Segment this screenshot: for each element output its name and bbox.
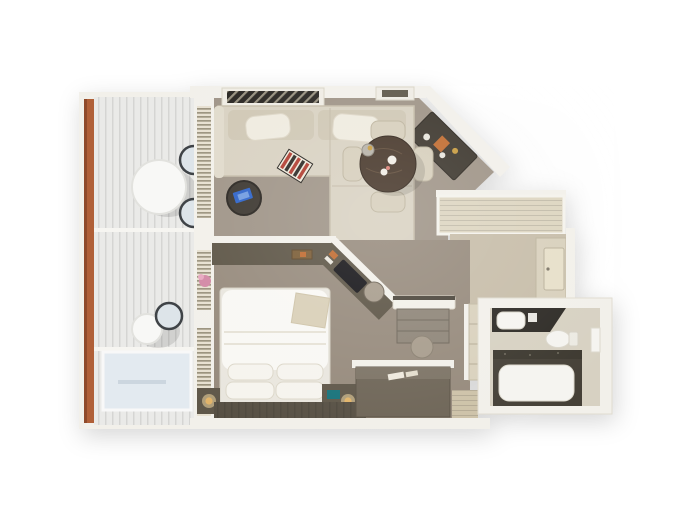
floorplan-canvas [0, 0, 680, 510]
outdoor-chair [156, 303, 182, 329]
deck-divider-lower [94, 347, 200, 351]
glass-screen-bar [118, 380, 166, 384]
light-overlay [194, 86, 614, 430]
suite-floorplan [79, 86, 614, 430]
balcony [79, 92, 208, 429]
deck-divider-upper [94, 228, 200, 232]
balcony-railing-shadow [84, 99, 87, 423]
outdoor-table-upper [132, 160, 186, 214]
